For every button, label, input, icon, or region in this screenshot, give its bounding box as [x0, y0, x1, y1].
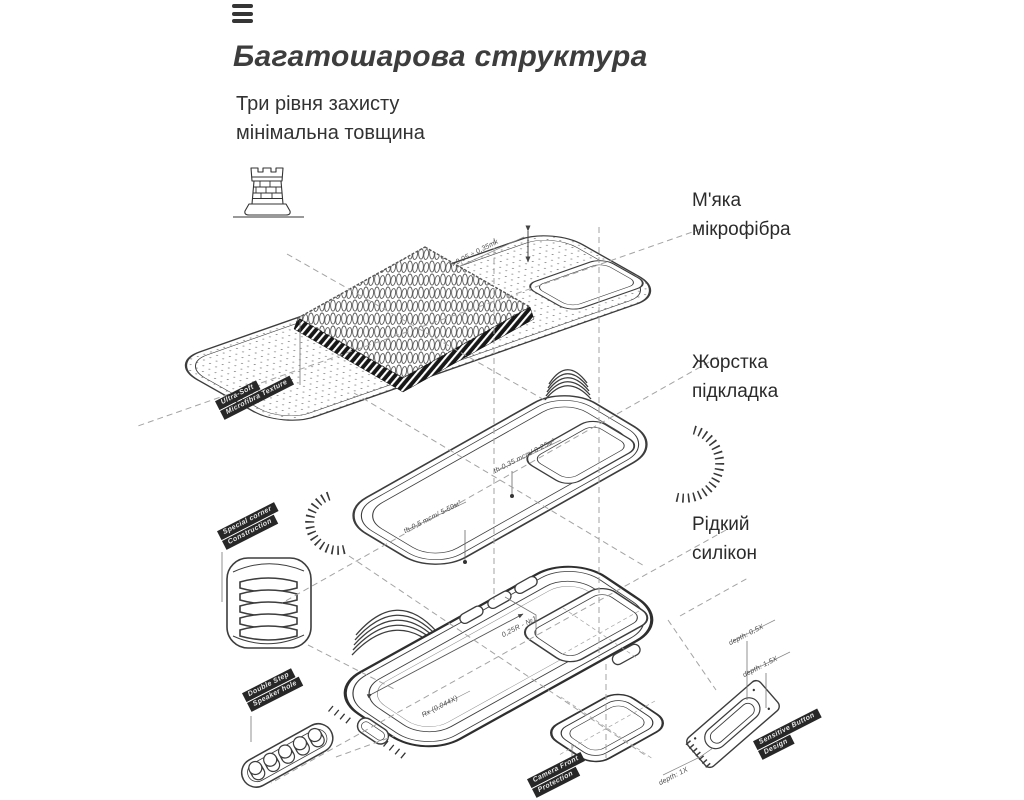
- label-microfiber: М'яка мікрофібра: [692, 186, 791, 244]
- page-subtitle: Три рівня захисту мінімальна товщина: [236, 90, 425, 148]
- subtitle-line-1: Три рівня захисту: [236, 90, 425, 119]
- exploded-diagram: [0, 0, 1024, 800]
- label-silicone-line1: Рідкий: [692, 510, 757, 539]
- subtitle-line-2: мінімальна товщина: [236, 119, 425, 148]
- page-title: Багатошарова структура: [233, 40, 648, 74]
- corner-piece-detail: [222, 552, 311, 648]
- speaker-holes-detail: [236, 719, 338, 793]
- camera-ring-detail: [543, 689, 672, 766]
- corner-hatch-right: [676, 430, 720, 498]
- hamburger-icon[interactable]: [232, 4, 253, 23]
- corner-hatch-left: [310, 496, 346, 550]
- label-microfiber-line1: М'яка: [692, 186, 791, 215]
- label-silicone: Рідкий силікон: [692, 510, 757, 568]
- label-lining-line2: підкладка: [692, 377, 778, 406]
- label-lining-line1: Жорстка: [692, 348, 778, 377]
- castle-tower-icon: [233, 168, 304, 217]
- label-microfiber-line2: мікрофібра: [692, 215, 791, 244]
- label-silicone-line2: силікон: [692, 539, 757, 568]
- page: { "header": { "title": "Багатошарова стр…: [0, 0, 1024, 800]
- label-lining: Жорстка підкладка: [692, 348, 778, 406]
